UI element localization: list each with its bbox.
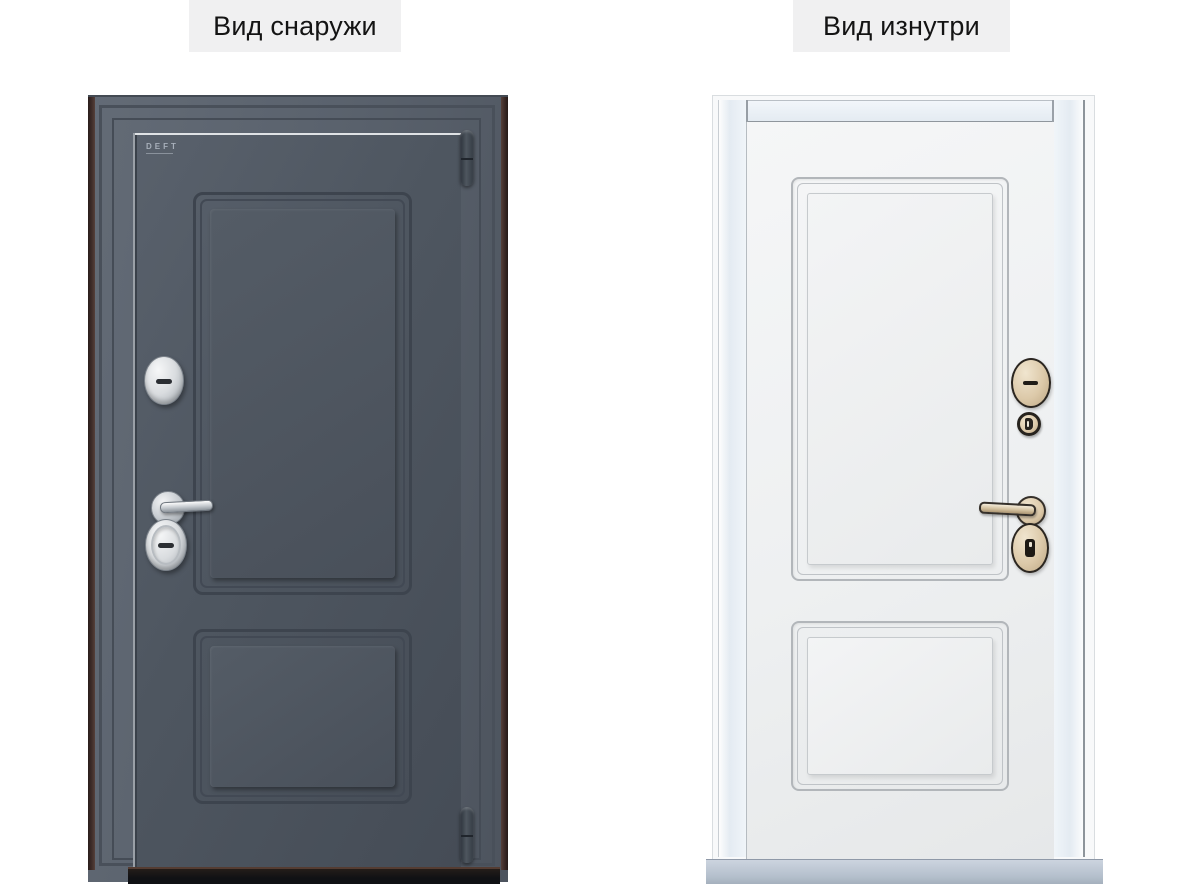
door-outside-image: DEFT [88, 95, 508, 882]
brand-logo-text: DEFT [146, 142, 179, 151]
door-inside-lower-panel [791, 621, 1009, 791]
caption-outside-view: Вид снаружи [189, 0, 401, 52]
thumb-turn-knob-icon [1025, 418, 1033, 430]
door-inside-leaf [746, 122, 1054, 859]
door-inside-lower-panel-inset [807, 637, 993, 775]
door-outside-upper-panel-inset [210, 209, 395, 578]
door-inside-threshold [706, 859, 1103, 884]
caption-inside-view: Вид изнутри [793, 0, 1010, 52]
door-outside-edge-left [88, 97, 95, 870]
door-outside-upper-panel [193, 192, 412, 595]
keyhole-vertical-icon [1025, 539, 1035, 557]
cylinder-escutcheon-icon [144, 356, 184, 405]
keyhole-slot-icon [156, 379, 172, 384]
caption-inside-label: Вид изнутри [823, 11, 980, 42]
door-outside-bottom-threshold [128, 867, 500, 884]
cylinder-escutcheon-icon [1011, 358, 1051, 408]
door-outside-edge-right [501, 97, 508, 870]
keyhole-escutcheon-icon [1011, 523, 1049, 573]
door-inside-upper-panel-inset [807, 193, 993, 565]
caption-outside-label: Вид снаружи [213, 11, 377, 42]
thumb-turn-icon [1017, 412, 1041, 436]
brand-logo: DEFT [146, 142, 179, 154]
keyhole-slot-icon [1023, 381, 1038, 385]
door-outside-lower-panel-inset [210, 646, 395, 787]
door-inside-image [712, 95, 1095, 882]
keyhole-escutcheon-icon [145, 519, 187, 571]
thumb-turn-slot-icon [1027, 421, 1029, 427]
hinge-top-icon [460, 130, 474, 186]
door-inside-frame-left [718, 100, 748, 857]
door-inside-frame-top [718, 100, 1085, 123]
door-outside-lower-panel [193, 629, 412, 804]
hinge-bottom-icon [460, 807, 474, 863]
door-inside-frame-right [1052, 100, 1085, 857]
keyhole-slot-icon [158, 543, 174, 548]
brand-logo-underline [146, 153, 173, 154]
door-inside-upper-panel [791, 177, 1009, 581]
